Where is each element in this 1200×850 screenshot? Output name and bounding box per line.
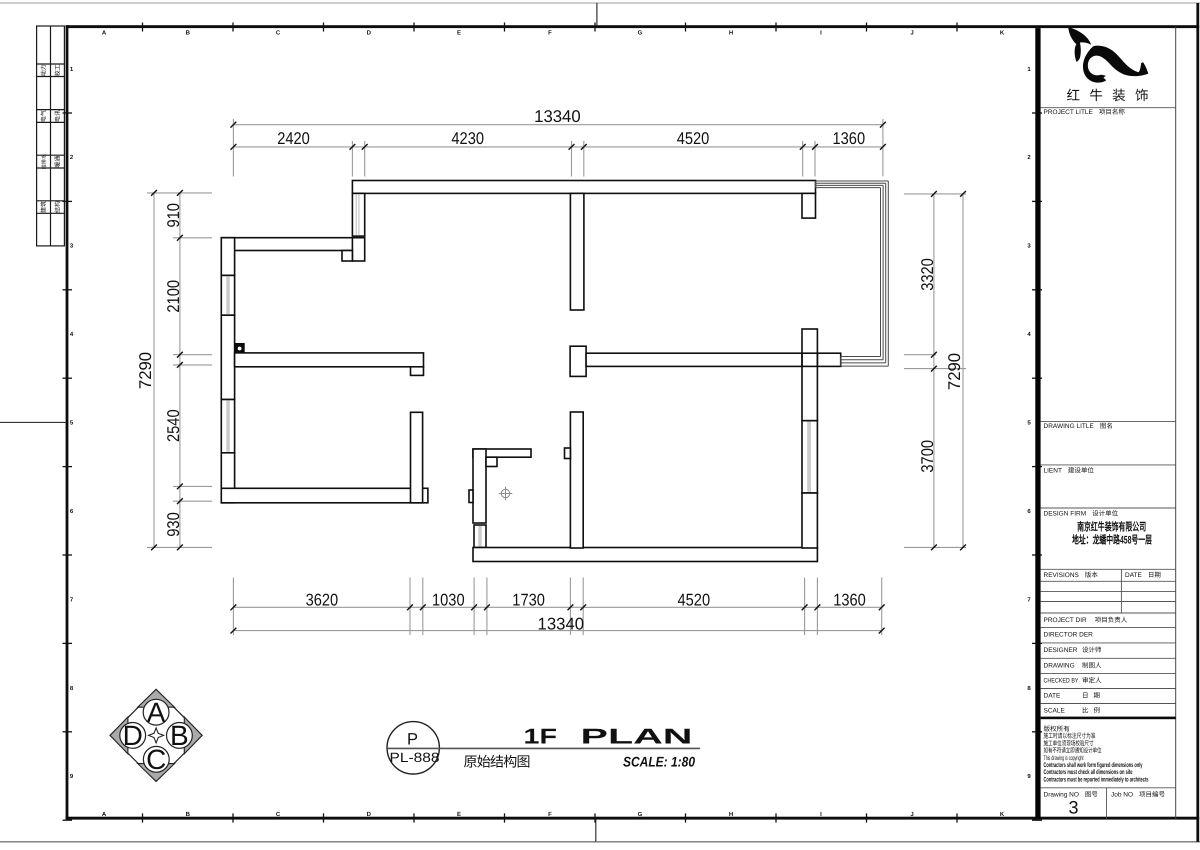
svg-text:版权所有: 版权所有 bbox=[1044, 725, 1071, 733]
svg-text:3: 3 bbox=[1068, 798, 1078, 818]
svg-text:F: F bbox=[548, 30, 552, 37]
svg-text:13340: 13340 bbox=[538, 614, 585, 633]
svg-text:930: 930 bbox=[164, 512, 183, 537]
svg-text:建筑: 建筑 bbox=[40, 201, 48, 213]
svg-text:910: 910 bbox=[164, 203, 183, 228]
svg-text:B: B bbox=[186, 30, 191, 37]
svg-text:B: B bbox=[170, 720, 189, 751]
svg-text:DESIGN FIRM设计单位: DESIGN FIRM设计单位 bbox=[1044, 510, 1119, 518]
svg-text:G: G bbox=[638, 811, 643, 818]
svg-text:4520: 4520 bbox=[677, 129, 710, 148]
svg-text:结构: 结构 bbox=[54, 201, 62, 213]
svg-text:电讯: 电讯 bbox=[54, 110, 62, 122]
svg-text:3700: 3700 bbox=[918, 440, 937, 473]
svg-text:SCALE: 1:80: SCALE: 1:80 bbox=[623, 754, 695, 770]
svg-text:7290: 7290 bbox=[136, 352, 155, 389]
svg-text:PROJECT LITLE项目名称: PROJECT LITLE项目名称 bbox=[1044, 108, 1126, 116]
svg-text:电气: 电气 bbox=[40, 110, 48, 122]
svg-text:如有不符请立即通知设计单位: 如有不符请立即通知设计单位 bbox=[1044, 747, 1102, 755]
svg-text:K: K bbox=[1000, 30, 1005, 37]
svg-text:施工单位须现场校验尺寸: 施工单位须现场校验尺寸 bbox=[1044, 739, 1094, 747]
svg-text:CHECKED BY审定人: CHECKED BY审定人 bbox=[1044, 676, 1103, 684]
svg-text:Contractors must check all dim: Contractors must check all dimensions on… bbox=[1044, 769, 1133, 776]
svg-text:A: A bbox=[147, 697, 166, 728]
svg-text:动力: 动力 bbox=[40, 64, 48, 76]
svg-text:7290: 7290 bbox=[945, 353, 964, 390]
svg-text:P: P bbox=[407, 731, 418, 749]
svg-text:E: E bbox=[457, 30, 461, 37]
svg-text:J: J bbox=[910, 811, 913, 818]
svg-text:原始结构图: 原始结构图 bbox=[464, 754, 531, 770]
svg-text:G: G bbox=[638, 30, 643, 37]
svg-text:J: J bbox=[910, 30, 913, 37]
svg-text:1030: 1030 bbox=[432, 590, 465, 609]
svg-text:DIRECTOR DER: DIRECTOR DER bbox=[1044, 632, 1094, 639]
svg-text:1730: 1730 bbox=[512, 590, 545, 609]
svg-text:2420: 2420 bbox=[277, 129, 310, 148]
svg-text:C: C bbox=[276, 30, 281, 37]
svg-text:4520: 4520 bbox=[678, 590, 711, 609]
svg-text:LIENT建设单位: LIENT建设单位 bbox=[1044, 467, 1095, 475]
svg-text:PROJECT DIR项目负责人: PROJECT DIR项目负责人 bbox=[1044, 616, 1128, 624]
svg-text:K: K bbox=[1000, 811, 1005, 818]
svg-text:D: D bbox=[367, 30, 372, 37]
svg-text:D: D bbox=[123, 720, 143, 751]
svg-text:2100: 2100 bbox=[164, 280, 183, 313]
svg-text:DRAWING LITLE图名: DRAWING LITLE图名 bbox=[1044, 422, 1113, 430]
svg-text:4230: 4230 bbox=[451, 129, 484, 148]
svg-text:3620: 3620 bbox=[306, 590, 339, 609]
svg-text:13340: 13340 bbox=[534, 107, 581, 126]
svg-text:暖通: 暖通 bbox=[55, 156, 62, 168]
svg-text:H: H bbox=[729, 811, 733, 818]
svg-text:Contractors shall work form fi: Contractors shall work form figured dime… bbox=[1044, 762, 1143, 769]
svg-text:F: F bbox=[548, 811, 552, 818]
svg-text:A: A bbox=[102, 811, 107, 818]
svg-text:E: E bbox=[457, 811, 461, 818]
svg-text:给排水: 给排水 bbox=[41, 153, 48, 169]
svg-text:C: C bbox=[276, 811, 281, 818]
svg-text:REVISIONS版本: REVISIONS版本 bbox=[1044, 571, 1099, 579]
svg-text:南京红牛装饰有限公司: 南京红牛装饰有限公司 bbox=[1077, 521, 1146, 534]
svg-text:Contractors must be reported i: Contractors must be reported immediately… bbox=[1044, 776, 1149, 783]
svg-text:地址：龙蟠中路458号一层: 地址：龙蟠中路458号一层 bbox=[1072, 534, 1152, 547]
svg-text:H: H bbox=[729, 30, 733, 37]
svg-text:C: C bbox=[146, 744, 166, 775]
svg-text:2540: 2540 bbox=[164, 409, 183, 442]
svg-text:1360: 1360 bbox=[833, 590, 866, 609]
svg-text:1F: 1F bbox=[524, 725, 558, 749]
svg-text:D: D bbox=[367, 811, 372, 818]
svg-text:校工: 校工 bbox=[54, 64, 62, 76]
svg-text:PL-888: PL-888 bbox=[390, 750, 440, 765]
svg-text:施工时请以标注尺寸为准: 施工时请以标注尺寸为准 bbox=[1044, 732, 1096, 740]
svg-text:1360: 1360 bbox=[833, 129, 866, 148]
svg-text:DESIGNER设计师: DESIGNER设计师 bbox=[1044, 646, 1103, 654]
svg-text:A: A bbox=[102, 30, 107, 37]
svg-text:B: B bbox=[186, 811, 191, 818]
svg-text:PLAN: PLAN bbox=[581, 725, 693, 749]
svg-text:3320: 3320 bbox=[918, 258, 937, 291]
svg-text:This drawing is copyright: This drawing is copyright bbox=[1044, 755, 1084, 762]
svg-text:DRAWING制图人: DRAWING制图人 bbox=[1044, 661, 1103, 669]
svg-text:Job NO项目编号: Job NO项目编号 bbox=[1111, 791, 1166, 799]
